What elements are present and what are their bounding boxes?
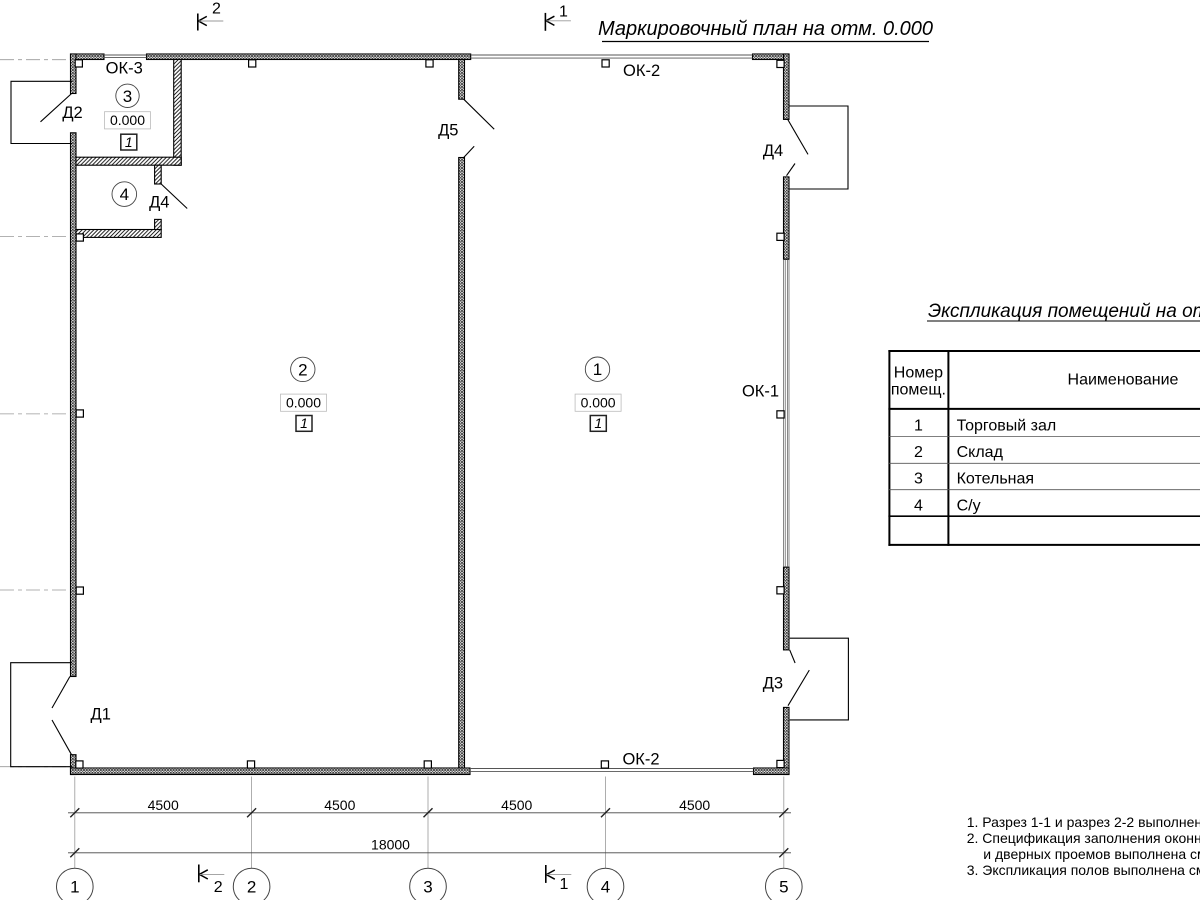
svg-text:ОК-2: ОК-2 bbox=[623, 62, 660, 80]
svg-text:1: 1 bbox=[593, 360, 602, 379]
svg-text:4: 4 bbox=[601, 878, 610, 897]
svg-text:Экспликация помещений на отм.: Экспликация помещений на отм. 0.000 bbox=[928, 301, 1200, 322]
svg-text:5: 5 bbox=[779, 878, 788, 897]
svg-text:1: 1 bbox=[70, 878, 79, 897]
svg-text:Номер: Номер bbox=[894, 365, 943, 382]
svg-text:Котельная: Котельная bbox=[957, 471, 1034, 488]
svg-text:3: 3 bbox=[123, 87, 132, 106]
svg-text:4: 4 bbox=[120, 185, 129, 204]
svg-text:Д4: Д4 bbox=[149, 194, 169, 212]
svg-text:1: 1 bbox=[300, 415, 308, 431]
svg-text:1: 1 bbox=[914, 417, 923, 434]
svg-text:ОК-1: ОК-1 bbox=[742, 383, 779, 401]
svg-text:и дверных проемов выполнена см: и дверных проемов выполнена см. лист 6 bbox=[983, 846, 1200, 862]
svg-text:ОК-2: ОК-2 bbox=[622, 750, 659, 768]
svg-text:Торговый зал: Торговый зал bbox=[957, 417, 1057, 434]
svg-text:3. Экспликация полов выполнена: 3. Экспликация полов выполнена см. лист … bbox=[967, 862, 1200, 878]
svg-text:0.000: 0.000 bbox=[110, 112, 145, 128]
svg-text:2. Спецификация заполнения око: 2. Спецификация заполнения оконных bbox=[967, 830, 1200, 846]
svg-text:4: 4 bbox=[914, 497, 923, 514]
svg-text:4500: 4500 bbox=[324, 797, 355, 813]
svg-text:1: 1 bbox=[125, 134, 133, 150]
svg-text:1: 1 bbox=[594, 415, 602, 431]
svg-text:1: 1 bbox=[559, 876, 568, 893]
svg-text:3: 3 bbox=[914, 471, 923, 488]
svg-text:2: 2 bbox=[214, 879, 223, 896]
svg-text:18000: 18000 bbox=[371, 837, 410, 853]
svg-text:Д3: Д3 bbox=[763, 675, 783, 693]
svg-text:Склад: Склад bbox=[957, 444, 1004, 461]
svg-text:Д2: Д2 bbox=[62, 104, 82, 122]
svg-text:ОК-3: ОК-3 bbox=[106, 59, 143, 77]
svg-text:1: 1 bbox=[559, 4, 568, 21]
svg-text:Маркировочный план на отм. 0.0: Маркировочный план на отм. 0.000 bbox=[598, 18, 933, 40]
svg-text:Д1: Д1 bbox=[91, 706, 111, 724]
svg-text:4500: 4500 bbox=[501, 797, 532, 813]
svg-text:0.000: 0.000 bbox=[286, 394, 321, 410]
svg-text:Д5: Д5 bbox=[438, 122, 458, 140]
svg-text:помещ.: помещ. bbox=[891, 382, 946, 399]
svg-text:0.000: 0.000 bbox=[581, 394, 616, 410]
svg-text:2: 2 bbox=[914, 444, 923, 461]
svg-text:1. Разрез 1-1 и разрез 2-2 вып: 1. Разрез 1-1 и разрез 2-2 выполнены на … bbox=[967, 814, 1200, 830]
svg-text:2: 2 bbox=[247, 878, 256, 897]
svg-text:3: 3 bbox=[423, 878, 432, 897]
svg-text:4500: 4500 bbox=[148, 797, 179, 813]
svg-text:4500: 4500 bbox=[679, 797, 710, 813]
svg-text:Д4: Д4 bbox=[763, 142, 783, 160]
svg-text:2: 2 bbox=[298, 360, 307, 379]
svg-text:Наименование: Наименование bbox=[1068, 372, 1179, 389]
svg-text:С/у: С/у bbox=[957, 497, 981, 514]
svg-text:2: 2 bbox=[212, 1, 221, 18]
